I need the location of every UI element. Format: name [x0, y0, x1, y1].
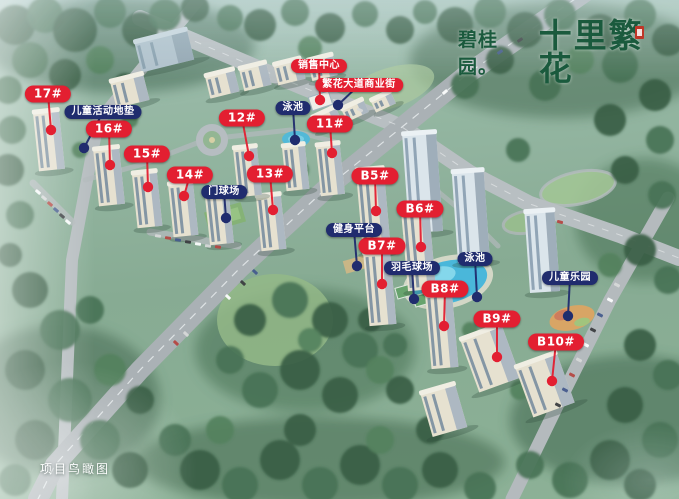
- bldg-11-label: 11#: [307, 116, 353, 133]
- fac-playmat-label: 儿童活动地垫: [65, 105, 142, 119]
- fac-pool-west-label: 泳池: [276, 101, 311, 115]
- roundabout: [196, 124, 228, 156]
- bldg-b7-label: B7#: [358, 238, 405, 255]
- bldg-b6-label: B6#: [396, 201, 443, 218]
- fac-sales-label: 销售中心: [291, 59, 347, 73]
- fac-fitness-label: 健身平台: [326, 223, 382, 237]
- fac-gateball-label: 门球场: [201, 185, 247, 199]
- bldg-13-label: 13#: [247, 166, 293, 183]
- bldg-b9-label: B9#: [473, 311, 520, 328]
- bldg-b10-label: B10#: [528, 334, 584, 351]
- fac-pool-east-label: 泳池: [458, 252, 493, 266]
- seal-stamp-icon: [635, 26, 644, 39]
- fac-badminton-label: 羽毛球场: [384, 261, 440, 275]
- bldg-14-label: 14#: [167, 167, 213, 184]
- view-caption: 项目鸟瞰图: [40, 460, 110, 477]
- bldg-b8-label: B8#: [421, 281, 468, 298]
- project-name: 十里繁花: [539, 19, 676, 85]
- bldg-12-label: 12#: [219, 110, 265, 127]
- brand-name: 碧桂园。: [458, 25, 537, 79]
- fac-kidspark-label: 儿童乐园: [542, 271, 598, 285]
- bldg-17-label: 17#: [25, 86, 71, 103]
- brand-logo: 碧桂园。 十里繁花: [458, 24, 676, 80]
- bldg-16-label: 16#: [86, 121, 132, 138]
- project-aerial-view: 17#16#15#14#13#12#11#B5#B6#B7#B8#B9#B10#…: [0, 0, 679, 499]
- fac-street-label: 繁花大道商业街: [315, 78, 403, 92]
- bldg-15-label: 15#: [124, 146, 170, 163]
- bldg-b5-label: B5#: [351, 168, 398, 185]
